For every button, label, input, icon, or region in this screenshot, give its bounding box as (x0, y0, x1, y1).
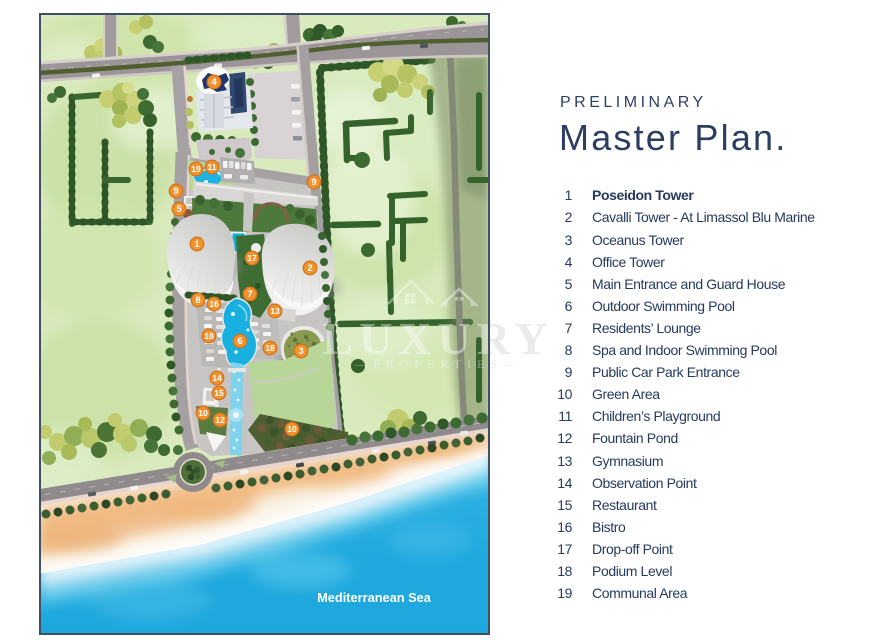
svg-text:1: 1 (194, 239, 200, 250)
svg-text:15: 15 (214, 388, 224, 398)
svg-text:4: 4 (211, 77, 217, 88)
svg-text:10: 10 (198, 408, 208, 418)
svg-text:Mediterranean Sea: Mediterranean Sea (317, 590, 432, 605)
svg-text:17: 17 (247, 253, 257, 263)
svg-text:7: 7 (247, 289, 252, 300)
svg-text:9: 9 (173, 186, 178, 197)
svg-text:18: 18 (204, 331, 214, 341)
svg-text:12: 12 (215, 415, 225, 425)
svg-text:8: 8 (195, 295, 200, 306)
svg-text:2: 2 (307, 263, 312, 274)
svg-text:18: 18 (265, 343, 275, 353)
svg-text:19: 19 (191, 164, 201, 174)
svg-text:9: 9 (311, 177, 316, 188)
svg-text:10: 10 (287, 424, 297, 434)
svg-text:14: 14 (212, 373, 222, 383)
svg-text:11: 11 (208, 162, 217, 172)
svg-text:16: 16 (209, 299, 219, 309)
svg-text:3: 3 (298, 346, 303, 357)
svg-text:13: 13 (270, 306, 280, 316)
svg-text:6: 6 (237, 336, 242, 347)
svg-text:5: 5 (176, 204, 182, 215)
